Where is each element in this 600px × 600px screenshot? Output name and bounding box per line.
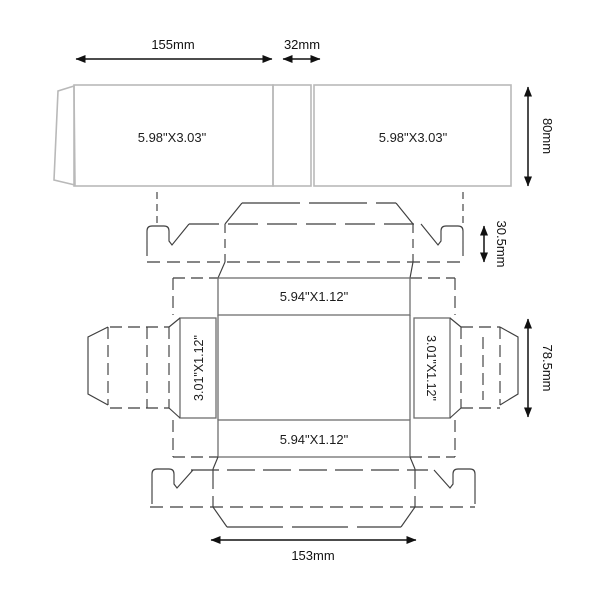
bottom-tuck-right-slope <box>401 507 415 527</box>
tuck-flap-left-slope <box>225 203 242 224</box>
bottom-right-taper <box>410 457 415 469</box>
top-panel-right-label: 5.98"X3.03" <box>379 130 448 145</box>
top-panel-left-label: 5.98"X3.03" <box>138 130 207 145</box>
dim-label-80mm: 80mm <box>540 118 555 154</box>
bottom-hook-left <box>152 469 193 504</box>
left-wing-bottom-chamfer <box>169 408 180 418</box>
main-body: 5.94"X1.12" 5.94"X1.12" 3.01"X1.12" 3.01… <box>180 278 450 457</box>
dim-label-32mm: 32mm <box>284 37 320 52</box>
band-top-label: 5.94"X1.12" <box>280 289 349 304</box>
right-wing <box>450 318 518 418</box>
dust-hook-right <box>421 224 463 256</box>
top-left-glue-flap <box>54 86 75 185</box>
left-end-tab <box>88 327 108 405</box>
dim-label-78-5mm: 78.5mm <box>540 345 555 392</box>
left-wing-top-chamfer <box>169 318 180 327</box>
dim-label-153mm: 153mm <box>291 548 334 563</box>
tuck-right-taper <box>410 262 413 278</box>
top-panel-spine <box>273 85 311 186</box>
bottom-left-taper <box>213 457 218 469</box>
right-wing-bottom-chamfer <box>450 408 461 418</box>
top-panel-row: 5.98"X3.03" 5.98"X3.03" <box>54 85 511 186</box>
side-left-label: 3.01"X1.12" <box>192 335 206 401</box>
side-right-label: 3.01"X1.12" <box>424 335 438 401</box>
tuck-flap-right-slope <box>396 203 413 224</box>
dieline-diagram-page: 5.98"X3.03" 5.98"X3.03" 155mm 32mm 80mm … <box>0 0 600 600</box>
band-bottom-label: 5.94"X1.12" <box>280 432 349 447</box>
dim-label-155mm: 155mm <box>151 37 194 52</box>
bottom-hook-right <box>434 469 475 504</box>
tuck-left-taper <box>218 262 225 278</box>
right-end-tab <box>500 327 518 405</box>
dim-label-30-5mm: 30.5mm <box>494 221 509 268</box>
bottom-tuck-left-slope <box>213 507 227 527</box>
left-wing <box>88 318 180 418</box>
right-wing-top-chamfer <box>450 318 461 327</box>
dieline-diagram: 5.98"X3.03" 5.98"X3.03" 155mm 32mm 80mm … <box>0 0 600 600</box>
dust-hook-left <box>147 224 189 256</box>
